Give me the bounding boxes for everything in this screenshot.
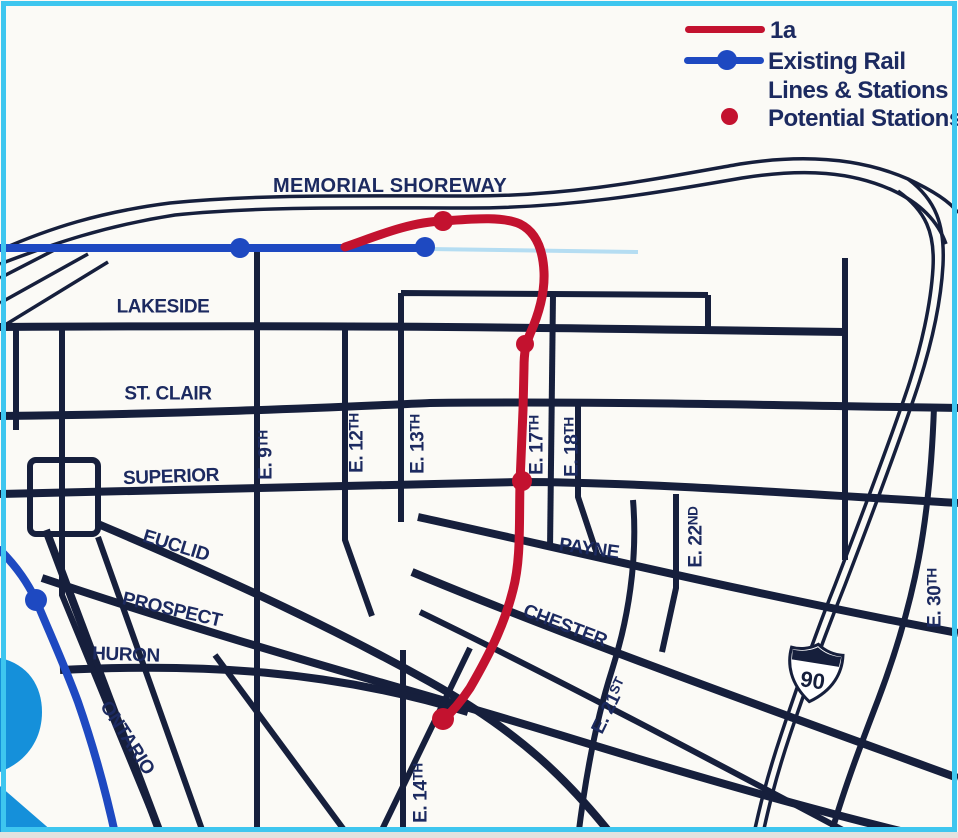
legend-route-line-swatch (685, 26, 765, 33)
rail-line-faded (428, 249, 638, 252)
street-st-clair (0, 403, 958, 416)
street-label-e9th: E. 9TH (257, 430, 276, 480)
street-label-e18th: E. 18TH (563, 417, 582, 477)
potential-station-dot (432, 708, 454, 730)
existing-station-dot (25, 589, 47, 611)
street-label-e13th: E. 13TH (409, 414, 428, 474)
potential-station-dot (516, 335, 534, 353)
existing-station-dot (415, 237, 435, 257)
street-label-huron: HURON (92, 644, 160, 665)
street-label-e30th: E. 30TH (926, 568, 945, 628)
street-label-lakeside: LAKESIDE (117, 298, 210, 317)
shoreway-ramp-2 (0, 254, 88, 303)
street-label-memorial-shoreway: MEMORIAL SHOREWAY (273, 176, 507, 196)
street-label-e22nd: E. 22ND (687, 506, 706, 567)
street-label-st-clair: ST. CLAIR (124, 385, 211, 404)
existing-station-dot (230, 238, 250, 258)
street-label-e12th: E. 12TH (348, 413, 367, 473)
legend-potential-station-dot (721, 108, 738, 125)
street-label-e14th: E. 14TH (412, 763, 431, 823)
shield-number: 90 (799, 666, 827, 695)
legend-existing-label-line1: Existing Rail (768, 50, 906, 74)
legend-potential-label: Potential Stations (768, 107, 958, 131)
transit-map: 90 MEMORIAL SHOREWAY LAKESIDE ST. CLAIR … (0, 0, 958, 838)
legend-existing-station-dot (717, 50, 737, 70)
street-e17th (550, 294, 553, 550)
river-band (0, 786, 60, 838)
street-lakeside (0, 326, 845, 332)
street-label-superior: SUPERIOR (123, 466, 220, 488)
potential-station-dot (433, 211, 453, 231)
legend-route-label: 1a (770, 19, 796, 43)
legend-existing-label-line2: Lines & Stations (768, 79, 948, 103)
street-ontario-parallel (98, 537, 205, 838)
water-shapes (0, 658, 60, 838)
river-bulge (0, 658, 42, 772)
scan-edge-strip (0, 832, 958, 838)
street-label-e17th: E. 17TH (528, 415, 547, 475)
